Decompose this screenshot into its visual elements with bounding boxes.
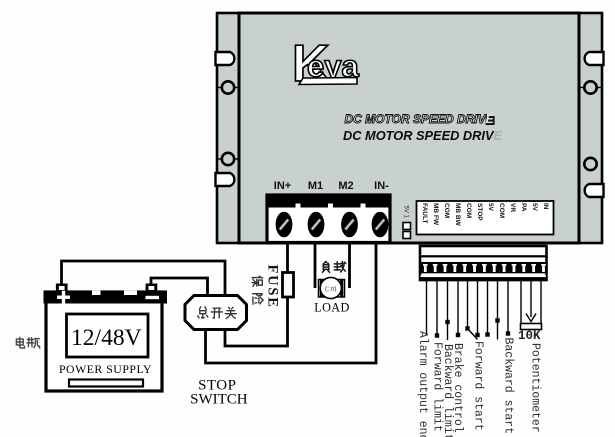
svg-text:PA: PA [520,203,527,212]
svg-text:Backward start: Backward start [501,338,514,435]
svg-text:IN: IN [542,203,549,210]
svg-text:DC MOTOR SPEED DRIVE: DC MOTOR SPEED DRIVE [345,112,495,126]
svg-text:SWITCH: SWITCH [190,392,248,408]
svg-text:LOAD: LOAD [314,301,349,315]
svg-text:M2: M2 [338,180,353,192]
svg-text:FUSE: FUSE [265,265,281,309]
svg-text:COM: COM [443,203,450,218]
svg-text:5V: 5V [487,203,494,212]
svg-text:POWER SUPPLY: POWER SUPPLY [59,362,152,376]
svg-text:FAULT: FAULT [421,203,428,223]
svg-text:12/48V: 12/48V [71,325,142,351]
svg-text:Alarm output end: Alarm output end [416,331,429,437]
svg-text:10K: 10K [518,329,541,343]
svg-text:MB FW: MB FW [432,203,439,226]
svg-text:Forward start: Forward start [471,341,484,431]
svg-text:COM: COM [498,203,505,218]
svg-text:(;:o): (;:o) [325,286,337,293]
svg-text:5V 1: 5V 1 [403,206,409,219]
svg-text:DC MOTOR SPEED DRIVE: DC MOTOR SPEED DRIVE [343,128,503,143]
svg-text:STOP: STOP [476,203,483,221]
svg-text:IN+: IN+ [274,180,291,192]
svg-text:Potentiometer: Potentiometer [529,343,542,433]
svg-text:VR: VR [509,203,516,212]
svg-text:IN-: IN- [374,180,389,192]
svg-text:5V: 5V [531,203,538,212]
svg-text:COM: COM [465,203,472,218]
svg-text:M1: M1 [308,180,323,192]
svg-text:MB BW: MB BW [454,203,461,227]
svg-text:Brake control: Brake control [451,343,464,433]
